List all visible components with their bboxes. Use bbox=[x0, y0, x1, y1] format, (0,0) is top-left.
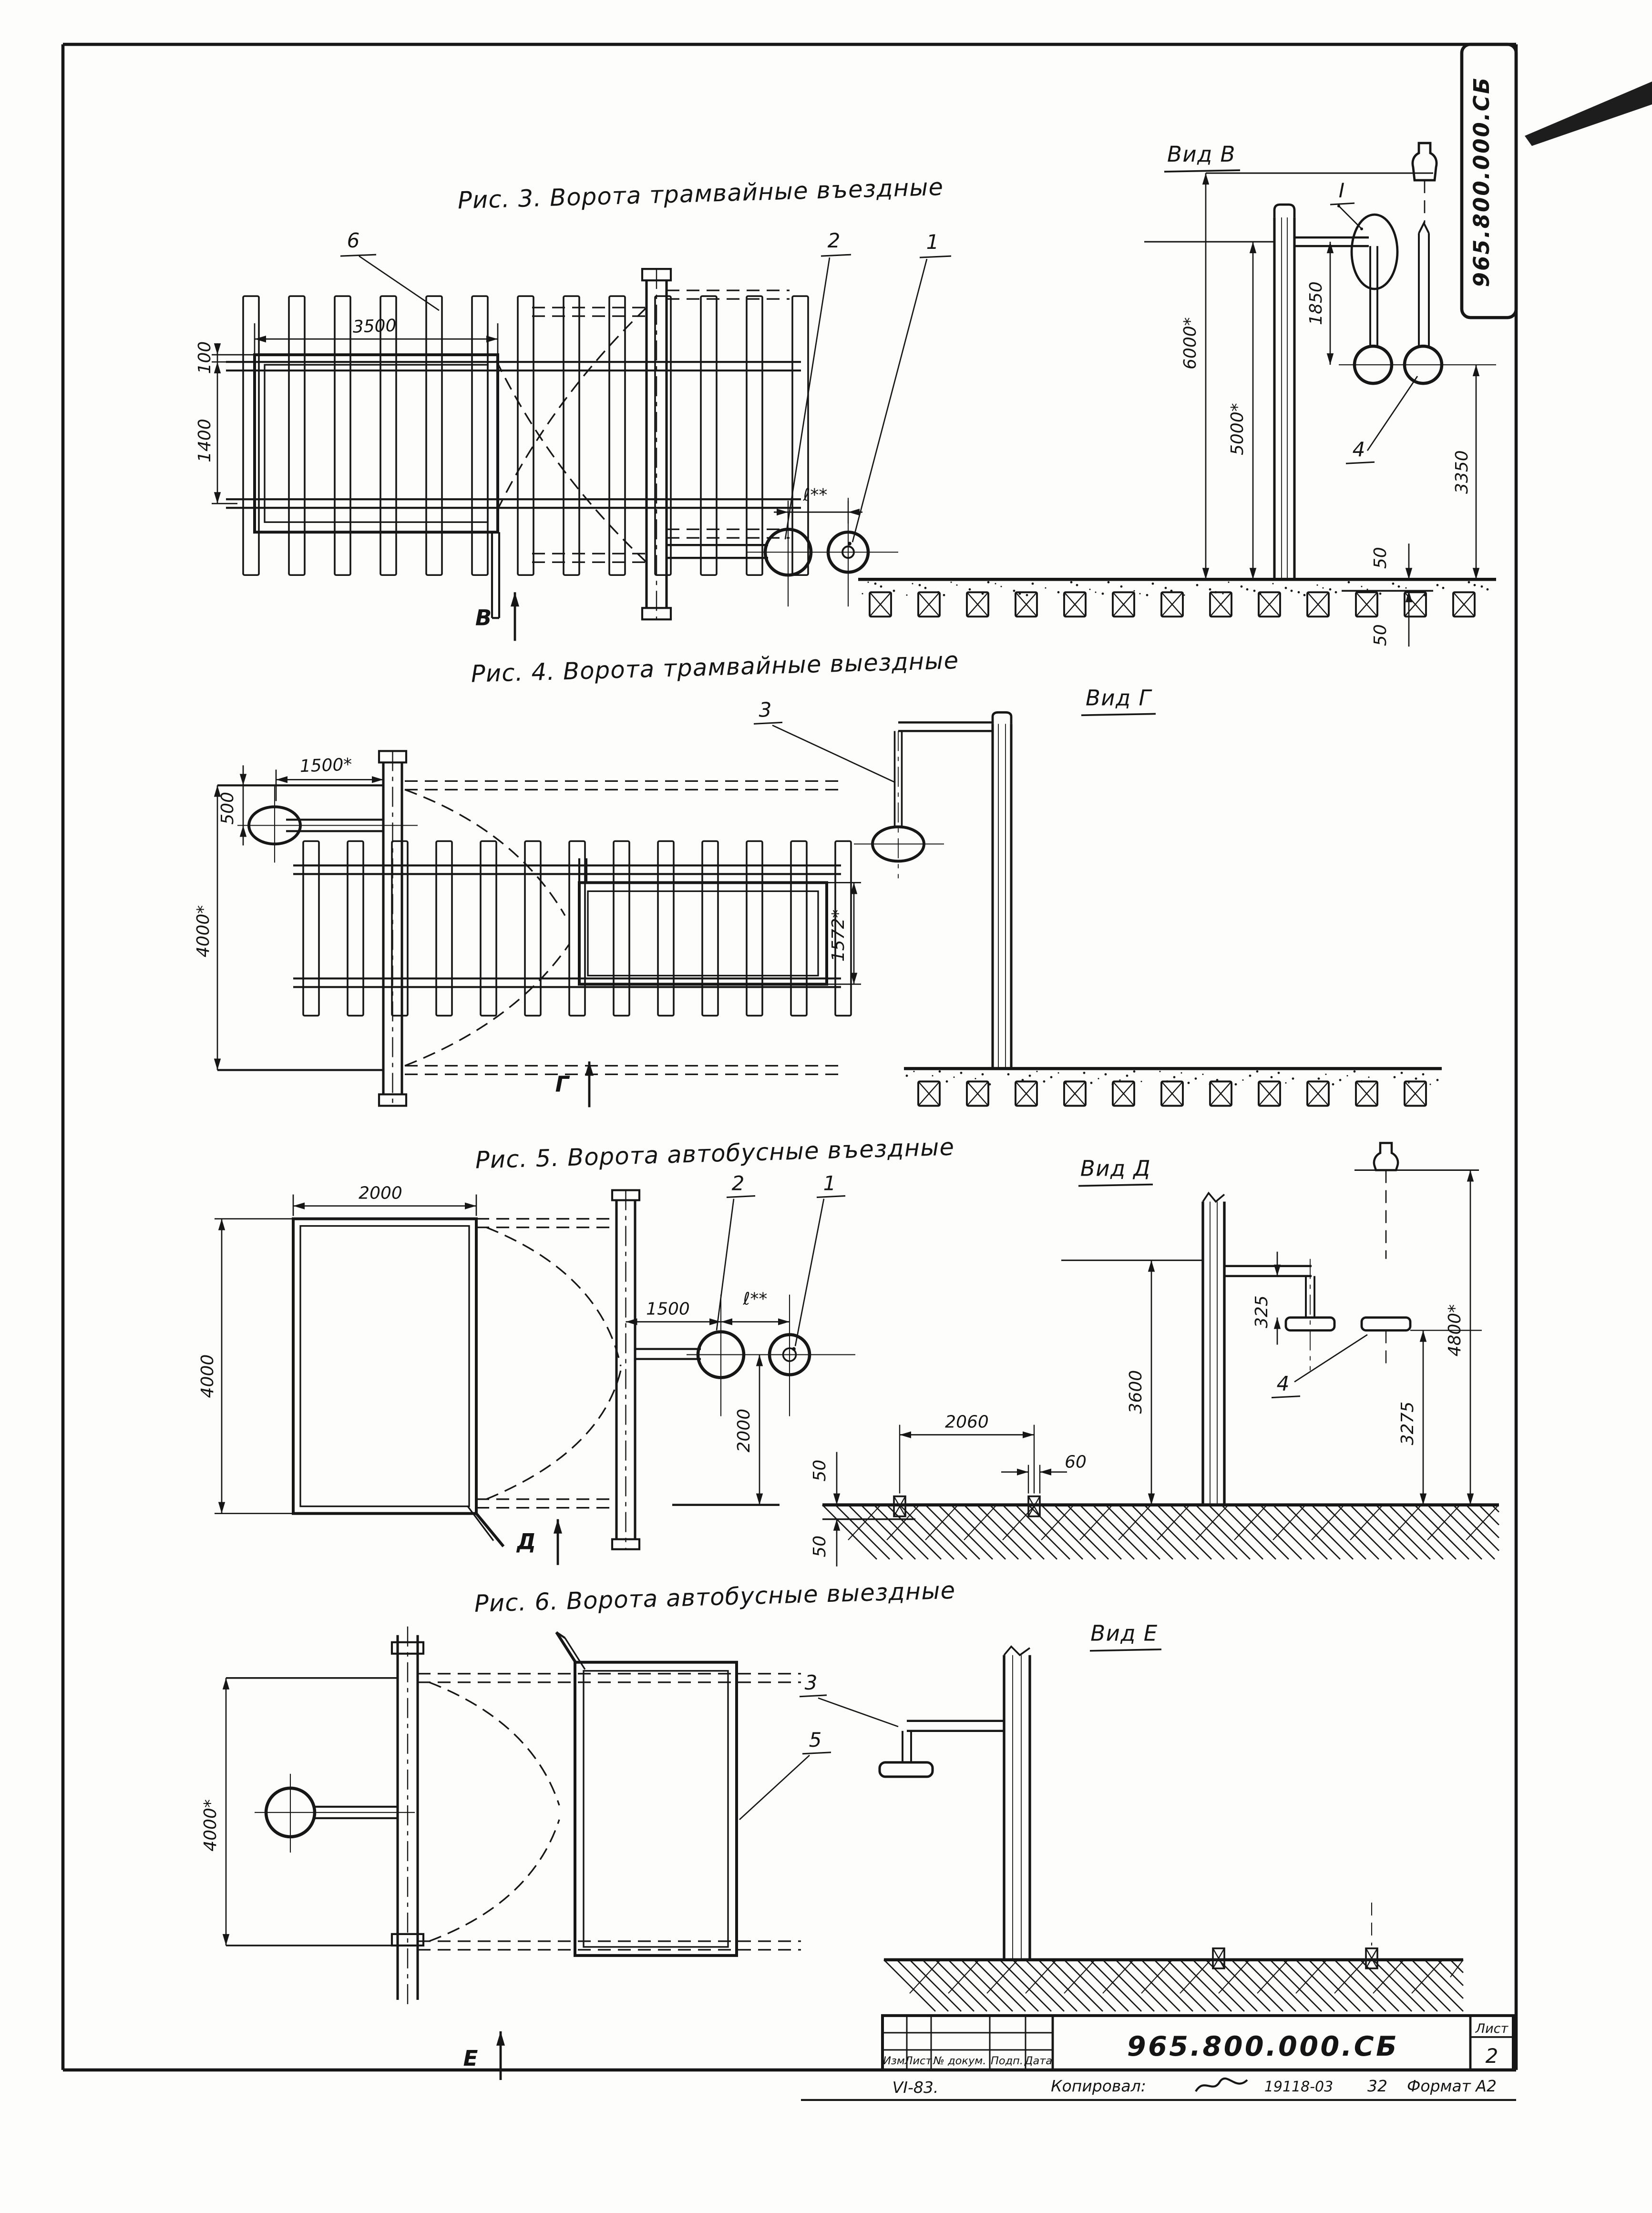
ballast-dot bbox=[1120, 585, 1123, 588]
ballast-dot bbox=[1152, 583, 1154, 585]
view-underline bbox=[1164, 170, 1240, 172]
fig6-callout-5: 5 bbox=[809, 1728, 822, 1752]
fig3-dim-6000: 6000* bbox=[1180, 317, 1200, 369]
ballast-dot bbox=[1291, 590, 1293, 592]
ballast-dot bbox=[1139, 593, 1141, 594]
ballast-dot bbox=[913, 1071, 915, 1072]
fig4-view-label: Вид Г bbox=[1086, 685, 1153, 710]
arrowhead bbox=[240, 825, 246, 837]
ballast-dot bbox=[1249, 1075, 1252, 1077]
fig5-dim-3600: 3600 bbox=[1126, 1370, 1146, 1414]
fig4-dim-500: 500 bbox=[218, 792, 237, 825]
fig3-dim-l: ℓ** bbox=[803, 485, 828, 505]
footer-copied-label: Копировал: bbox=[1051, 2077, 1146, 2095]
fig3-callout-6: 6 bbox=[347, 229, 360, 252]
fig5-dim-l: ℓ** bbox=[743, 1290, 768, 1309]
sleeper-tie bbox=[655, 296, 671, 575]
arrowhead bbox=[1017, 1468, 1028, 1475]
gate-leaf-inner bbox=[300, 1226, 469, 1506]
arrowhead bbox=[756, 1494, 763, 1505]
post-cap bbox=[1274, 205, 1294, 217]
arrowhead bbox=[372, 776, 383, 783]
fig5-callout-1: 1 bbox=[823, 1172, 836, 1195]
ballast-dot bbox=[1354, 1070, 1356, 1073]
title-block-sheet-number: 2 bbox=[1486, 2044, 1498, 2068]
leader bbox=[1339, 206, 1362, 229]
arrowhead bbox=[756, 1355, 763, 1366]
fig3-view-label: Вид В bbox=[1167, 142, 1236, 167]
arrowhead bbox=[1467, 1170, 1474, 1182]
title-block-header-dokum: № докум. bbox=[933, 2055, 986, 2067]
ballast-dot bbox=[1303, 594, 1306, 596]
leader bbox=[795, 1199, 824, 1346]
hatch-line bbox=[961, 1960, 1013, 2011]
view-underline bbox=[1078, 1185, 1153, 1186]
hatch-line bbox=[1051, 1960, 1103, 2011]
ballast-dot bbox=[906, 594, 908, 596]
ballast-dot bbox=[1043, 1080, 1046, 1083]
ballast-dot bbox=[1095, 592, 1097, 593]
hatch-line bbox=[935, 1960, 987, 2011]
callout-underline bbox=[817, 1196, 845, 1198]
callout-underline bbox=[800, 1695, 827, 1697]
ballast-dot bbox=[956, 584, 958, 586]
ballast-dot bbox=[975, 1078, 976, 1079]
latch-plate bbox=[1362, 1318, 1410, 1331]
sleeper-tie bbox=[348, 841, 363, 1015]
view-underline bbox=[1081, 714, 1156, 715]
ballast-dot bbox=[1368, 1076, 1370, 1078]
arrowhead bbox=[486, 336, 498, 342]
hatch-line bbox=[1399, 1960, 1450, 2011]
ballast-dot bbox=[1070, 581, 1073, 584]
ballast-dot bbox=[1437, 584, 1439, 586]
hatch-line bbox=[1129, 1960, 1180, 2011]
ballast-dot bbox=[1209, 588, 1211, 591]
fig3-dim-100: 100 bbox=[195, 341, 215, 374]
arrowhead bbox=[240, 774, 246, 785]
fig5-dim-50-bottom: 50 bbox=[810, 1536, 830, 1557]
fig5-dim-1500: 1500 bbox=[646, 1300, 690, 1319]
ballast-dot bbox=[951, 582, 952, 583]
fig3-view-B-elevation bbox=[858, 143, 1496, 646]
hatch-line bbox=[884, 1960, 935, 2011]
arrowhead bbox=[223, 1934, 229, 1946]
ballast-dot bbox=[1050, 1076, 1053, 1078]
leaf-kick bbox=[476, 1514, 503, 1547]
ballast-dot bbox=[1348, 581, 1350, 584]
ballast-dot bbox=[1317, 584, 1318, 586]
hatch-line bbox=[1231, 1960, 1283, 2011]
fig4-title: Рис. 4. Ворота трамвайные выездные bbox=[471, 646, 959, 688]
ballast-dot bbox=[874, 583, 877, 585]
post-cap bbox=[993, 712, 1011, 724]
fig3-section-letter-B: В bbox=[475, 605, 492, 630]
arrowhead bbox=[1406, 568, 1412, 579]
ballast-dot bbox=[1098, 1078, 1099, 1079]
callout-underline bbox=[727, 1196, 755, 1198]
ballast-dot bbox=[1339, 1079, 1342, 1081]
arrowhead bbox=[1040, 1468, 1051, 1475]
gate-leaf-open bbox=[575, 1662, 737, 1956]
leader bbox=[1294, 1335, 1367, 1382]
callout-underline bbox=[1272, 1396, 1300, 1398]
fig6-title: Рис. 6. Ворота автобусные выездные bbox=[474, 1577, 956, 1618]
scanned-drawing-page: Рис. 3. Ворота трамвайные въездные 6 350… bbox=[0, 0, 1652, 2213]
sleeper-tie bbox=[658, 841, 674, 1015]
hatch-line bbox=[1038, 1960, 1090, 2011]
hatch-line bbox=[1270, 1960, 1322, 2011]
rod-chamfer bbox=[1419, 223, 1429, 233]
ballast-dot bbox=[1318, 1077, 1320, 1080]
sleeper-tie bbox=[525, 841, 541, 1015]
sleeper-tie bbox=[701, 296, 717, 575]
fig3-dim-50-bottom: 50 bbox=[1371, 624, 1390, 646]
ballast-dot bbox=[1361, 586, 1363, 587]
arrowhead bbox=[1202, 173, 1209, 184]
post-break bbox=[1203, 1193, 1224, 1202]
drawing-sheet: Рис. 3. Ворота трамвайные въездные 6 350… bbox=[0, 0, 1652, 2213]
ballast-dot bbox=[1119, 1079, 1121, 1081]
arrowhead bbox=[1327, 353, 1334, 365]
fig5-dim-325: 325 bbox=[1252, 1295, 1272, 1328]
hatch-line bbox=[1154, 1960, 1206, 2011]
arrowhead bbox=[1202, 568, 1209, 579]
ballast-dot bbox=[1202, 1074, 1204, 1075]
ballast-dot bbox=[868, 582, 869, 583]
leaf-kick bbox=[556, 1632, 576, 1664]
leader bbox=[739, 1755, 810, 1820]
gate-leaf-open-inner bbox=[584, 1671, 728, 1947]
sleeper-tie bbox=[481, 841, 496, 1015]
ballast-dot bbox=[960, 1072, 963, 1074]
callout-underline bbox=[821, 255, 851, 256]
arrowhead bbox=[218, 1502, 225, 1514]
arrowhead bbox=[214, 492, 221, 503]
fig4-dim-4000: 4000* bbox=[194, 905, 213, 958]
ballast-dot bbox=[1083, 1072, 1086, 1074]
fig6-callout-3: 3 bbox=[805, 1671, 818, 1694]
arrowhead bbox=[1327, 242, 1334, 253]
leader bbox=[818, 1698, 898, 1727]
title-block-header-izm: Изм bbox=[883, 2055, 905, 2067]
fig4-dim-1572: 1572* bbox=[829, 910, 848, 962]
fig5-dim-2000-width: 2000 bbox=[359, 1184, 402, 1203]
ballast-dot bbox=[1165, 587, 1167, 589]
ballast-dot bbox=[1001, 586, 1002, 587]
hatch-line bbox=[974, 1960, 1026, 2011]
hatch-line bbox=[1437, 1960, 1463, 1986]
ballast-dot bbox=[919, 584, 921, 586]
callout-underline bbox=[1346, 462, 1375, 463]
view-underline bbox=[1090, 1650, 1161, 1651]
ballast-dot bbox=[1007, 1073, 1010, 1076]
hatch-line bbox=[1244, 1960, 1296, 2011]
fig5-dim-50-top: 50 bbox=[810, 1460, 830, 1482]
ballast-dot bbox=[939, 1070, 941, 1073]
hatch-line bbox=[1386, 1960, 1437, 2011]
corner-stamp-number: 965.800.000.СБ bbox=[1469, 76, 1494, 287]
ballast-dot bbox=[1089, 589, 1091, 590]
footer-format-label: Формат А2 bbox=[1407, 2077, 1497, 2095]
title-block-doc-number: 965.800.000.СБ bbox=[1127, 2031, 1399, 2062]
arrowhead bbox=[721, 1318, 732, 1325]
hatch-line bbox=[1309, 1960, 1360, 2011]
hatch-line bbox=[897, 1960, 948, 2011]
callout-underline bbox=[754, 722, 782, 724]
fig4-view-G-elevation bbox=[754, 712, 1442, 1106]
ballast-dot bbox=[1468, 581, 1470, 584]
ballast-dot bbox=[1335, 591, 1337, 594]
footer-copy-ref: 19118-03 bbox=[1264, 2079, 1333, 2095]
fig5-plan-view bbox=[215, 1190, 1067, 1567]
fig3-callout-2: 2 bbox=[828, 229, 841, 252]
ballast-dot bbox=[1332, 1083, 1334, 1086]
fig3-callout-I: I bbox=[1339, 179, 1344, 202]
ballast-dot bbox=[1278, 1072, 1280, 1074]
leader bbox=[852, 259, 927, 542]
leaf-kick bbox=[468, 1506, 493, 1541]
ballast-dot bbox=[1253, 590, 1256, 592]
ballast-dot bbox=[1323, 587, 1324, 589]
ballast-dot bbox=[1057, 591, 1060, 594]
copier-signature bbox=[1196, 2079, 1247, 2091]
ballast-dot bbox=[1398, 585, 1400, 588]
ballast-dot bbox=[1133, 1070, 1136, 1073]
fig6-dim-4000: 4000* bbox=[201, 1799, 220, 1852]
arrowhead bbox=[1250, 568, 1256, 579]
fig3-dim-5000: 5000* bbox=[1228, 403, 1247, 455]
swing-arc bbox=[405, 944, 569, 1066]
arrowhead bbox=[1148, 1494, 1155, 1505]
arrowhead bbox=[626, 1318, 637, 1325]
ballast-dot bbox=[1422, 1073, 1425, 1076]
arrowhead bbox=[1420, 1331, 1426, 1342]
arrowhead bbox=[1274, 1318, 1281, 1329]
ballast-dot bbox=[932, 1075, 934, 1076]
hatch-line bbox=[1283, 1960, 1334, 2011]
dot bbox=[1360, 227, 1363, 230]
ballast-dot bbox=[995, 583, 996, 584]
ballast-dot bbox=[1271, 1076, 1273, 1078]
arrowhead bbox=[1467, 1494, 1474, 1505]
hatch-line bbox=[1013, 1960, 1064, 2011]
fig4-dim-1500: 1500* bbox=[299, 755, 352, 776]
fig3-callout-4: 4 bbox=[1353, 438, 1365, 461]
fig6-view-label: Вид Е bbox=[1090, 1621, 1158, 1646]
ballast-dot bbox=[1188, 1082, 1190, 1084]
ballast-dot bbox=[1235, 1083, 1237, 1086]
fig5-dim-3275: 3275 bbox=[1398, 1402, 1417, 1445]
footer-copy-num: 32 bbox=[1367, 2077, 1387, 2095]
arrowhead bbox=[848, 509, 860, 515]
sleeper-tie bbox=[747, 296, 762, 575]
fig6-section-letter-E: Е bbox=[463, 2046, 478, 2071]
title-block-sheet-label: Лист bbox=[1475, 2021, 1509, 2036]
fig5-title: Рис. 5. Ворота автобусные въездные bbox=[475, 1133, 955, 1174]
arrowhead bbox=[465, 1202, 476, 1209]
fig5-view-D-elevation bbox=[822, 1143, 1499, 1559]
ballast-dot bbox=[1392, 583, 1395, 585]
title-block-header-data: Дата bbox=[1024, 2055, 1052, 2067]
fig3-callout-1: 1 bbox=[926, 230, 939, 254]
ballast-dot bbox=[1246, 588, 1249, 591]
ballast-dot bbox=[1013, 590, 1016, 592]
fig5-callout-4: 4 bbox=[1277, 1372, 1290, 1395]
leader bbox=[359, 256, 439, 310]
ballast-dot bbox=[1242, 1079, 1244, 1081]
post-break bbox=[1004, 1647, 1030, 1655]
ballast-dot bbox=[946, 1080, 948, 1083]
arrowhead bbox=[214, 343, 221, 355]
fig6-view-E-elevation bbox=[880, 1647, 1463, 2011]
arrowhead bbox=[1250, 242, 1256, 253]
latch-plate bbox=[880, 1762, 933, 1777]
swing-arc bbox=[486, 1371, 621, 1499]
hatch-line bbox=[923, 1960, 974, 2011]
ballast-dot bbox=[924, 587, 927, 589]
fig5-dim-60: 60 bbox=[1065, 1453, 1087, 1472]
ballast-dot bbox=[1406, 587, 1407, 589]
sleeper-tie bbox=[564, 296, 579, 575]
ballast-dot bbox=[1285, 1082, 1287, 1084]
arrowhead bbox=[276, 776, 287, 783]
ballast-dot bbox=[1241, 585, 1243, 588]
ballast-dot bbox=[1181, 1072, 1182, 1074]
fig6-plan-view bbox=[223, 1627, 898, 2080]
dot bbox=[1337, 205, 1340, 207]
ballast-dot bbox=[1076, 584, 1078, 586]
sleeper-tie bbox=[614, 841, 629, 1015]
callout-underline bbox=[340, 255, 376, 256]
hatch-line bbox=[1077, 1960, 1129, 2011]
arrowhead bbox=[496, 2031, 505, 2046]
ballast-dot bbox=[1159, 1071, 1161, 1072]
arrowhead bbox=[214, 362, 221, 373]
fig3-dim-3350: 3350 bbox=[1452, 450, 1472, 494]
arrowhead bbox=[218, 1219, 225, 1230]
arrowhead bbox=[709, 1318, 721, 1325]
sleeper-tie bbox=[436, 841, 452, 1015]
gate-leaf bbox=[293, 1219, 476, 1514]
fig5-section-letter-D: Д bbox=[516, 1529, 536, 1555]
arrowhead bbox=[778, 1318, 790, 1325]
ballast-dot bbox=[1379, 593, 1382, 595]
ballast-dot bbox=[1045, 587, 1047, 589]
ballast-dot bbox=[1430, 1084, 1431, 1085]
ballast-dot bbox=[1292, 1077, 1294, 1080]
ballast-dot bbox=[1285, 587, 1287, 589]
ballast-dot bbox=[1256, 1070, 1259, 1073]
ballast-dot bbox=[1032, 583, 1034, 585]
ballast-dot bbox=[1108, 581, 1110, 584]
ballast-dot bbox=[880, 585, 882, 588]
ballast-dot bbox=[912, 583, 913, 584]
ballast-dot bbox=[969, 588, 971, 591]
sleeper-tie bbox=[303, 841, 319, 1015]
stop-pin-finial bbox=[1413, 143, 1437, 180]
sleeper-tie bbox=[392, 841, 408, 1015]
ballast-dot bbox=[987, 581, 990, 584]
swing-arc bbox=[429, 1820, 559, 1941]
ballast-dot bbox=[1347, 1075, 1348, 1076]
fig5-dim-2060: 2060 bbox=[945, 1413, 989, 1432]
ballast-dot bbox=[1329, 588, 1332, 591]
ballast-dot bbox=[1272, 583, 1274, 584]
title-block-header-list: Лист bbox=[904, 2055, 932, 2067]
ballast-dot bbox=[1173, 1076, 1176, 1078]
hatch-line bbox=[1167, 1960, 1219, 2011]
arrowhead bbox=[223, 1678, 229, 1690]
ballast-dot bbox=[1141, 1081, 1142, 1082]
arrowhead bbox=[214, 1058, 221, 1070]
ballast-dot bbox=[1196, 584, 1199, 586]
ballast-dot bbox=[1487, 588, 1489, 591]
arrowhead bbox=[777, 509, 788, 515]
fig5-dim-4800: 4800* bbox=[1445, 1304, 1465, 1357]
ballast-dot bbox=[893, 590, 895, 592]
arrowhead bbox=[511, 592, 519, 606]
callout-underline bbox=[920, 256, 951, 257]
ballast-dot bbox=[1401, 1072, 1403, 1074]
fig3-title: Рис. 3. Ворота трамвайные въездные bbox=[457, 173, 944, 214]
arrowhead bbox=[1274, 1265, 1281, 1276]
sleeper-tie bbox=[518, 296, 534, 575]
stop-pin-finial bbox=[1374, 1143, 1398, 1170]
arrowhead bbox=[255, 336, 266, 342]
hatch-line bbox=[1116, 1960, 1167, 2011]
ballast-dot bbox=[954, 1076, 955, 1078]
ballast-dot bbox=[1029, 1075, 1031, 1077]
ballast-dot bbox=[1481, 585, 1483, 588]
ballast-dot bbox=[906, 1075, 908, 1077]
ballast-dot bbox=[1367, 589, 1368, 590]
fig4-section-letter-G: Г bbox=[555, 1071, 570, 1096]
swing-arc bbox=[486, 1228, 621, 1366]
ballast-dot bbox=[1228, 582, 1230, 583]
ballast-dot bbox=[1415, 1077, 1417, 1080]
leader bbox=[717, 1199, 734, 1331]
leader bbox=[772, 725, 895, 782]
ballast-dot bbox=[1026, 594, 1028, 596]
ballast-dot bbox=[1394, 1076, 1396, 1078]
callout-underline bbox=[1330, 203, 1354, 205]
dot bbox=[792, 1347, 796, 1351]
ballast-dot bbox=[1036, 1071, 1038, 1072]
ballast-dot bbox=[1474, 584, 1476, 586]
hatch-line bbox=[1090, 1960, 1141, 2011]
fig4-plan-view bbox=[214, 751, 861, 1107]
leader bbox=[1367, 376, 1417, 451]
sleeper-tie bbox=[702, 841, 718, 1015]
arrowhead bbox=[1473, 568, 1479, 579]
hatch-line bbox=[1000, 1960, 1051, 2011]
ballast-dot bbox=[943, 594, 945, 596]
fig4-callout-3: 3 bbox=[759, 698, 772, 721]
ballast-dot bbox=[1442, 587, 1445, 589]
arrowhead bbox=[900, 1431, 911, 1438]
arrowhead bbox=[293, 1202, 305, 1209]
ballast-dot bbox=[1325, 1074, 1327, 1075]
ballast-dot bbox=[1134, 590, 1135, 592]
scan-edge-artifact bbox=[1525, 82, 1652, 146]
ballast-dot bbox=[1195, 1077, 1197, 1080]
ballast-dot bbox=[1090, 1082, 1093, 1084]
title-block-header-podp: Подп. bbox=[991, 2055, 1023, 2067]
sleeper-tie bbox=[747, 841, 762, 1015]
ballast-dot bbox=[1298, 591, 1300, 594]
arrowhead bbox=[1023, 1431, 1034, 1438]
